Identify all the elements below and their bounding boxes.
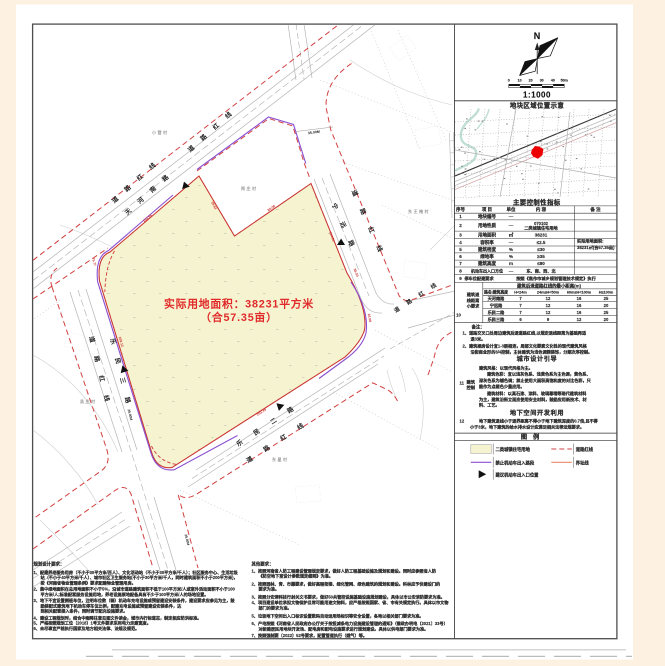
svg-text:用地性质: 用地性质 — [477, 222, 496, 229]
svg-text:建筑后退道路红线的最小距离(m): 建筑后退道路红线的最小距离(m) — [516, 283, 581, 290]
svg-text:1:1000: 1:1000 — [523, 91, 551, 100]
svg-text:60m≤H<100m: 60m≤H<100m — [567, 291, 592, 295]
svg-text:机动车出入口方位: 机动车出入口方位 — [471, 267, 503, 273]
svg-text:H<24m: H<24m — [514, 291, 527, 295]
svg-text:二类城镇住宅用地: 二类城镇住宅用地 — [496, 446, 531, 453]
svg-text:建筑材料：以真石漆、涂料、玻璃幕墙等现代建筑材料: 建筑材料：以真石漆、涂料、玻璃幕墙等现代建筑材料 — [486, 390, 587, 396]
svg-text:6、产电按照《河南省人民政府办公厅关于按投减条电力设施建设管: 6、产电按照《河南省人民政府办公厅关于按投减条电力设施建设管理的通知》（豫政办明… — [252, 620, 448, 626]
svg-text:%: % — [509, 254, 513, 259]
svg-text:控制: 控制 — [467, 384, 475, 391]
svg-text:4、建设工程规划时，结合中雨降往意见图文件读金，域市内行标道: 4、建设工程规划时，结合中雨降往意见图文件读金，域市内行标道志，制定相应防洪标准… — [34, 615, 202, 621]
svg-text:其他要求：: 其他要求： — [252, 561, 274, 568]
svg-text:东、南、西、北: 东、南、西、北 — [526, 267, 556, 274]
svg-text:内 容: 内 容 — [536, 206, 547, 213]
svg-text:地块编号: 地块编号 — [478, 213, 496, 220]
svg-text:11: 11 — [460, 381, 465, 386]
svg-text:≥35: ≥35 — [537, 254, 545, 259]
svg-text:图例: 图例 — [521, 433, 545, 441]
svg-text:—: — — [509, 214, 514, 219]
svg-text:规划设计要求：: 规划设计要求： — [34, 561, 65, 568]
svg-text:容积率: 容积率 — [479, 239, 494, 246]
svg-text:1、按照河南省人防工程建设管理规定要求，做好人防工程基础设施: 1、按照河南省人防工程建设管理规定要求，做好人防工程基础设施及规划和建设。同时应… — [252, 567, 437, 573]
svg-text:12: 12 — [460, 418, 465, 423]
svg-text:东王褚村: 东王褚村 — [408, 208, 430, 214]
svg-text:序号: 序号 — [455, 206, 465, 213]
svg-text:平方米/人;标准配套服务设施用地，养老设施原地配备具有不少于: 平方米/人;标准配套服务设施用地，养老设施原地配备具有不少于100平方米/人的场… — [41, 591, 209, 597]
svg-text:备注：: 备注： — [472, 324, 485, 331]
svg-text:6、未尽事宜严格执行国家及地方相关法律、法规及规范。: 6、未尽事宜严格执行国家及地方相关法律、法规及规范。 — [34, 625, 140, 631]
svg-text:25: 25 — [604, 296, 609, 301]
svg-text:乐民二路: 乐民二路 — [488, 309, 506, 316]
svg-text:≤30: ≤30 — [537, 247, 545, 252]
svg-text:≤80: ≤80 — [537, 261, 545, 266]
svg-text:地下建筑退线小于退界距离不得小于地下建筑深度的0.7倍,且不: 地下建筑退线小于退界距离不得小于地下建筑深度的0.7倍,且不得 — [479, 418, 599, 424]
svg-text:建筑色彩：宜以浅灰色系、浅黄色系为主色调，黄色系、: 建筑色彩：宜以浅灰色系、浅黄色系为主色调，黄色系、 — [486, 371, 591, 377]
svg-text:2、按照园林、青、市雕要求，做好高程衔接、绿化管网、绿色建筑: 2、按照园林、青、市雕要求，做好高程衔接、绿化管网、绿色建筑的规划和建设。科林应… — [252, 581, 441, 587]
svg-text:单位: 单位 — [507, 206, 516, 213]
svg-text:小于3米，地下建筑的给水排水设计应满足相关法律法规要求。: 小于3米，地下建筑的给水排水设计应满足相关法律法规要求。 — [469, 424, 584, 430]
svg-text:16: 16 — [577, 310, 582, 315]
svg-text:30: 30 — [540, 79, 544, 83]
svg-text:深灰色系为辅色调；禁止使用大面积高饱和度的对比色彩，只: 深灰色系为辅色调；禁止使用大面积高饱和度的对比色彩，只 — [479, 377, 592, 383]
svg-text:㎡: ㎡ — [509, 231, 514, 237]
svg-text:退3米。: 退3米。 — [471, 335, 486, 341]
svg-text:路名\建筑高度: 路名\建筑高度 — [484, 290, 508, 295]
svg-text:禁止机动车出入路段: 禁止机动车出入路段 — [496, 459, 535, 466]
svg-text:实际用地面积:: 实际用地面积: — [577, 238, 604, 245]
svg-text:3、按照分安津科技行射关文书要求，做好50共管控设施基础设施: 3、按照分安津科技行射关文书要求，做好50共管控设施基础设施规划建设，具体以市公… — [252, 594, 445, 600]
svg-text:7、按照强制要〔2022〕52号要求，配置管道执行（燃气）等: 7、按照强制要〔2022〕52号要求，配置管道执行（燃气）等。 — [252, 632, 368, 638]
svg-text:备 注: 备 注 — [589, 206, 601, 213]
svg-text:12: 12 — [577, 317, 582, 322]
svg-text:5、垃圾地下空间出入口标识设置数码自动运用场标识等安全设置，: 5、垃圾地下空间出入口标识设置数码自动运用场标识等安全设置，各地以相关部门要求为… — [252, 612, 424, 618]
svg-text:建筑高度: 建筑高度 — [477, 260, 496, 267]
svg-text:为主，建筑沿街立面应使用安全材料，鼓励应用新技术、材: 为主，建筑沿街立面应使用安全材料，鼓励应用新技术、材 — [479, 396, 588, 402]
svg-text:励装配式建筑地下机动车停车位比例，配建充电设施或预留建设安装: 励装配式建筑地下机动车停车位比例，配建充电设施或预留建设安装条件，达 — [41, 602, 183, 608]
svg-text:主要控制性指标: 主要控制性指标 — [513, 198, 561, 207]
svg-text:10: 10 — [518, 79, 522, 83]
svg-text:38231㎡(合57.35亩): 38231㎡(合57.35亩) — [577, 244, 615, 251]
svg-text:到相关配套接入条件，同时调节配充设施要求。: 到相关配套接入条件，同时调节配充设施要求。 — [41, 608, 128, 614]
svg-text:地下空间开发利用: 地下空间开发利用 — [510, 409, 564, 417]
svg-text:4、项目建设单位承担文物保护且常可能用途文物料，应严格按照国: 4、项目建设单位承担文物保护且常可能用途文物料，应严格按照国家、省、市有关规定执… — [252, 599, 450, 605]
svg-text:乐民三路: 乐民三路 — [488, 316, 506, 323]
svg-text:要求为准。: 要求为准。 — [259, 586, 280, 592]
svg-text:N: N — [534, 31, 541, 41]
svg-text:部门的要求为准。: 部门的要求为准。 — [259, 604, 292, 610]
svg-text:建筑密度: 建筑密度 — [477, 246, 496, 253]
svg-text:%: % — [509, 247, 513, 252]
svg-text:小要求: 小要求 — [467, 303, 480, 310]
svg-text:停车位配建要求: 停车位配建要求 — [464, 275, 494, 282]
svg-text:地块区域位置示意: 地块区域位置示意 — [510, 100, 565, 109]
svg-text:3、地下不宜设置倒班车位，注明车位数（辆）机动车充电设施或预: 3、地下不宜设置倒班车位，注明车位数（辆）机动车充电设施或预留建设安装条件，建设… — [34, 597, 236, 603]
svg-text:20: 20 — [604, 303, 609, 308]
svg-text:20: 20 — [604, 317, 609, 322]
svg-text:站（不小于40平方米/千人）、城市社区卫生服务站(不小于30: 站（不小于40平方米/千人）、城市社区卫生服务站(不小于30平方米/千人，同时建… — [41, 574, 238, 580]
svg-text:用地面积: 用地面积 — [477, 231, 496, 238]
svg-text:（合57.35亩）: （合57.35亩） — [200, 310, 277, 324]
svg-text:1、配建养老服务用房（不小于30平方米/百人）、文化活动站（: 1、配建养老服务用房（不小于30平方米/百人）、文化活动站（不小于30平方米/千… — [34, 569, 239, 575]
svg-text:—: — — [509, 268, 514, 273]
svg-text:0: 0 — [508, 79, 510, 83]
svg-text:≤2.5: ≤2.5 — [537, 240, 546, 245]
svg-text:《防空地下室设计参数规定细则》为准。: 《防空地下室设计参数规定细则》为准。 — [259, 573, 334, 579]
svg-text:吴庄村: 吴庄村 — [80, 398, 97, 404]
svg-text:12: 12 — [546, 303, 551, 308]
svg-text:岗庄村: 岗庄村 — [241, 185, 258, 191]
svg-text:2、集中绿地面积在总用地面积不小于5%，沿城市道路建筑面积不: 2、集中绿地面积在总用地面积不小于5%，沿城市道路建筑面积不低于100平方米/人… — [34, 586, 236, 592]
svg-text:界址线: 界址线 — [576, 459, 590, 466]
svg-text:小营村: 小营村 — [152, 129, 169, 135]
svg-text:道路红线: 道路红线 — [576, 446, 594, 453]
svg-text:按照《焦作市城乡规划管理技术规定》执行: 按照《焦作市城乡规划管理技术规定》执行 — [516, 275, 596, 282]
svg-text:50m: 50m — [561, 79, 568, 83]
svg-text:10: 10 — [456, 312, 461, 317]
svg-text:沿街商业形的3/4控制，主体建筑为浅色调精装饰，分期次序控制: 沿街商业形的3/4控制，主体建筑为浅色调精装饰，分期次序控制。 — [471, 348, 593, 354]
svg-text:1、道路交叉口处周边建筑后退道路红线,以规定退线距离为基础再: 1、道路交叉口处周边建筑后退道路红线,以规定退线距离为基础再适 — [463, 330, 587, 336]
svg-text:天河南路: 天河南路 — [488, 295, 506, 302]
svg-text:25: 25 — [604, 310, 609, 315]
svg-text:项 目: 项 目 — [482, 206, 492, 213]
svg-text:24m≤H<50m: 24m≤H<50m — [537, 291, 560, 295]
svg-text:16: 16 — [577, 296, 582, 301]
svg-text:二类城镇住宅用地: 二类城镇住宅用地 — [524, 225, 558, 232]
svg-text:—: — — [509, 240, 514, 245]
svg-text:m: m — [509, 261, 513, 266]
svg-text:对新建居民用地块开发场、配电房和配电设施要求进行规划建设。具: 对新建居民用地块开发场、配电房和配电设施要求进行规划建设。具体以供电部门要求为准… — [259, 625, 429, 631]
svg-text:H≥100m: H≥100m — [599, 291, 614, 295]
svg-text:16: 16 — [577, 303, 582, 308]
svg-text:建筑风格：以现代风格为主。: 建筑风格：以现代风格为主。 — [478, 365, 533, 371]
svg-text:按《河南省物业管理条例》要求配建物业管理用房。: 按《河南省物业管理条例》要求配建物业管理用房。 — [41, 579, 136, 585]
svg-text:20: 20 — [529, 79, 533, 83]
svg-text:能作为点缀色少量应用。: 能作为点缀色少量应用。 — [479, 383, 525, 389]
svg-text:宁远路: 宁远路 — [490, 302, 503, 309]
svg-text:12: 12 — [546, 310, 551, 315]
svg-text:5、严格按照规划工位〔2018〕1号文件要求采用电力走廊宽度: 5、严格按照规划工位〔2018〕1号文件要求采用电力走廊宽度。 — [34, 620, 151, 626]
svg-text:—: — — [509, 223, 514, 228]
svg-text:建议机动车出入口位置: 建议机动车出入口位置 — [495, 471, 540, 478]
svg-text:东星村: 东星村 — [272, 456, 289, 462]
svg-text:料、工艺。: 料、工艺。 — [479, 402, 500, 408]
svg-text:绿地率: 绿地率 — [480, 253, 494, 260]
svg-text:城市设计引导: 城市设计引导 — [517, 355, 558, 363]
svg-text:实际用地面积：38231平方米: 实际用地面积：38231平方米 — [164, 297, 314, 311]
svg-text:12: 12 — [546, 296, 551, 301]
svg-text:38231: 38231 — [535, 232, 548, 237]
svg-text:40: 40 — [551, 79, 555, 83]
svg-text:2、建筑裙房设计宜1-3层相连，局部文化要素文化性的现代建筑: 2、建筑裙房设计宜1-3层相连，局部文化要素文化性的现代建筑风格 — [463, 343, 588, 349]
